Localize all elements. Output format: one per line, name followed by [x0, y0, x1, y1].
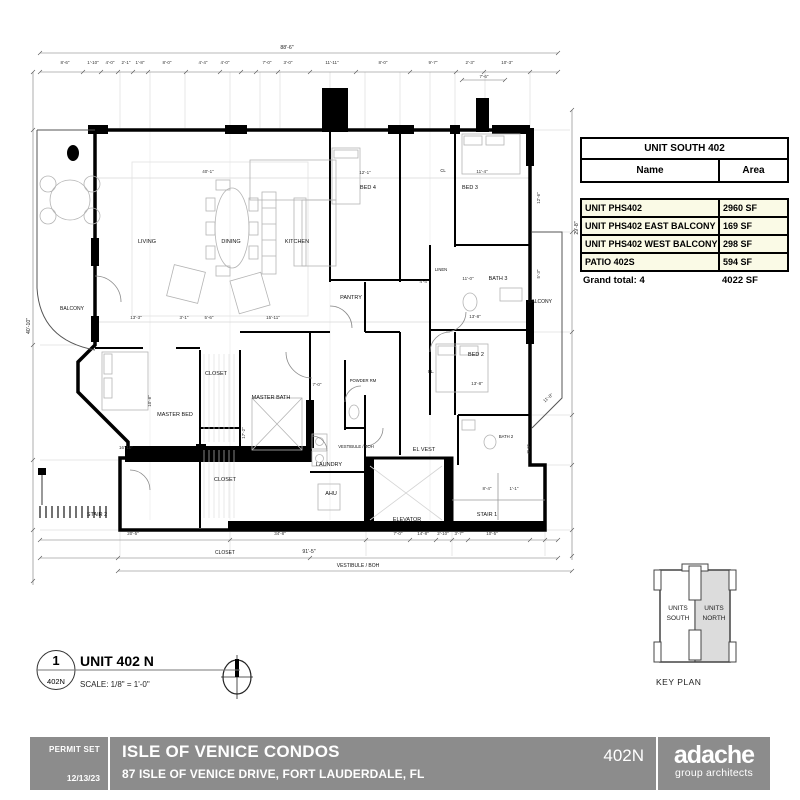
- area-table-title: UNIT SOUTH 402: [580, 137, 789, 160]
- dim-interior: 13'-8": [471, 381, 483, 386]
- floor-plan-canvas: LIVING DINING KITCHEN BED 4 BED 3 BED 2 …: [0, 0, 800, 800]
- dim-bottom: 14'-8": [417, 531, 429, 536]
- title-block-left: PERMIT SET 12/13/23: [30, 737, 110, 790]
- table-row: UNIT PHS402 2960 SF: [582, 200, 787, 218]
- keyplan-units-north-line2: NORTH: [703, 615, 726, 622]
- room-label-cl2: CL: [440, 168, 446, 173]
- room-label-master-bath: MASTER BATH: [252, 395, 291, 401]
- dim-interior: 4'-4": [420, 279, 429, 284]
- drawing-title: 1 402N UNIT 402 N SCALE: 1/8" = 1'-0": [37, 651, 240, 690]
- keyplan-label: KEY PLAN: [656, 677, 701, 687]
- area-table-col-name: Name: [582, 160, 720, 181]
- dim-interior: 8'-6": [526, 444, 531, 453]
- room-label-powder: POWDER RM: [350, 378, 377, 383]
- table-row: PATIO 402S 594 SF: [582, 254, 787, 272]
- dim-seg: 4'-0": [106, 60, 115, 65]
- row-area: 594 SF: [720, 254, 787, 270]
- room-label-balcony-west: BALCONY: [60, 306, 85, 312]
- firm-name: adache: [658, 744, 770, 767]
- total-label: Grand total: 4: [580, 275, 718, 293]
- room-label-master-bed: MASTER BED: [157, 412, 193, 418]
- keyplan-units-north-line1: UNITS: [704, 605, 724, 612]
- drawing-title-scale: SCALE: 1/8" = 1'-0": [80, 680, 150, 689]
- hatching: [40, 354, 234, 518]
- room-label-elevator: ELEVATOR: [393, 517, 421, 523]
- drawing-title-sheet-ref: 402N: [47, 677, 65, 686]
- room-label-linen: LINEN: [435, 267, 447, 272]
- dim-bottom: 20'-5": [127, 531, 139, 536]
- dim-seg: 3'-0": [284, 60, 293, 65]
- dim-interior: 12'-6": [536, 192, 541, 204]
- dim-interior: 13'-8": [469, 314, 481, 319]
- dim-interior: 16'-10": [119, 445, 133, 450]
- issue-date: 12/13/23: [30, 773, 100, 783]
- room-label-laundry: LAUNDRY: [316, 462, 343, 468]
- area-table-header: Name Area: [580, 160, 789, 183]
- dim-overall-top: 88'-6": [280, 45, 293, 51]
- room-label-pantry: PANTRY: [340, 295, 362, 301]
- area-table-body: UNIT PHS402 2960 SF UNIT PHS402 EAST BAL…: [580, 198, 789, 272]
- room-label-closet-c: CLOSET: [215, 550, 235, 556]
- wall-piers: [38, 88, 546, 531]
- dim-interior: 5'-6": [205, 315, 214, 320]
- dim-seg: 7'-0": [263, 60, 272, 65]
- dim-interior: 12'-1": [359, 170, 371, 175]
- dim-interior: 7'-0": [313, 382, 322, 387]
- dim-seg: 1'-10": [87, 60, 99, 65]
- drawing-title-number: 1: [52, 653, 59, 668]
- dim-seg: 4'-0": [221, 60, 230, 65]
- project-name: ISLE OF VENICE CONDOS: [122, 742, 656, 762]
- room-label-ahu: AHU: [325, 491, 337, 497]
- keyplan-units-south-line1: UNITS: [668, 605, 688, 612]
- room-label-kitchen: KITCHEN: [285, 239, 309, 245]
- row-area: 298 SF: [720, 236, 787, 252]
- drawing-sheet: LIVING DINING KITCHEN BED 4 BED 3 BED 2 …: [0, 0, 800, 800]
- dim-overall-left: 40'-10": [26, 318, 32, 334]
- room-label-vestibule: VESTIBULE / BOH: [338, 444, 374, 449]
- table-row: UNIT PHS402 WEST BALCONY 298 SF: [582, 236, 787, 254]
- sheet-number: 402N: [603, 746, 644, 766]
- room-label-dining: DINING: [221, 239, 240, 245]
- keyplan-units-south-line2: SOUTH: [667, 615, 690, 622]
- dim-interior: 11'-0": [462, 276, 474, 281]
- permit-set-label: PERMIT SET: [30, 745, 100, 754]
- room-label-stair1: STAIR 1: [477, 512, 497, 518]
- dim-bottom: 7'-0": [394, 531, 403, 536]
- dim-interior: 40'-1": [202, 169, 214, 174]
- dim-overall-bottom: 91'-5": [302, 549, 315, 555]
- row-name: UNIT PHS402: [582, 200, 720, 216]
- dim-interior: 3'-1": [180, 315, 189, 320]
- dim-interior: 8'-4": [483, 486, 492, 491]
- room-label-bath2: BATH 2: [499, 434, 514, 439]
- dim-seg: 10'-3": [501, 60, 513, 65]
- room-label-bed4: BED 4: [360, 185, 376, 191]
- balcony-outlines: [37, 130, 562, 428]
- dim-seg: 2'-3": [466, 60, 475, 65]
- dim-seg: 8'-6": [61, 60, 70, 65]
- area-table: UNIT SOUTH 402 Name Area UNIT PHS402 296…: [580, 137, 789, 293]
- dim-interior: 15'-11": [266, 315, 280, 320]
- title-block-main: ISLE OF VENICE CONDOS 87 ISLE OF VENICE …: [110, 737, 658, 790]
- furniture: [40, 134, 545, 520]
- dim-seg: 4'-4": [199, 60, 208, 65]
- row-name: UNIT PHS402 EAST BALCONY: [582, 218, 720, 234]
- room-label-closet-a: CLOSET: [205, 371, 228, 377]
- row-name: UNIT PHS402 WEST BALCONY: [582, 236, 720, 252]
- room-label-balcony-east: BALCONY: [528, 299, 553, 305]
- table-row: UNIT PHS402 EAST BALCONY 169 SF: [582, 218, 787, 236]
- room-label-stair2: STAIR 2: [87, 512, 107, 518]
- room-label-vestibule2: VESTIBULE / BOH: [337, 563, 380, 569]
- title-block-bar: PERMIT SET 12/13/23 ISLE OF VENICE CONDO…: [30, 737, 770, 790]
- dim-interior: 10'-8": [147, 395, 152, 407]
- area-table-col-area: Area: [720, 160, 787, 181]
- room-label-closet-b: CLOSET: [214, 477, 237, 483]
- dim-bottom: 3'-7": [455, 531, 464, 536]
- dim-seg: 2'-1": [122, 60, 131, 65]
- north-arrow-icon: [221, 655, 253, 699]
- dim-bottom: 10'-5": [486, 531, 498, 536]
- room-label-bed3: BED 3: [462, 185, 478, 191]
- row-area: 169 SF: [720, 218, 787, 234]
- dim-interior: 13'-3": [130, 315, 142, 320]
- dim-interior: 17'-2": [241, 427, 246, 439]
- dim-seg: 9'-7": [429, 60, 438, 65]
- room-label-bath3: BATH 3: [489, 276, 508, 282]
- dim-bottom: 2'-10": [437, 531, 449, 536]
- project-address: 87 ISLE OF VENICE DRIVE, FORT LAUDERDALE…: [122, 767, 656, 781]
- dim-interior: 11'-4": [476, 169, 488, 174]
- dim-interior: 11'-8": [542, 392, 554, 403]
- room-label-living: LIVING: [138, 239, 156, 245]
- dimension-labels: 88'-6" 8'-6" 1'-10" 4'-0" 2'-1" 1'-8" 8'…: [26, 45, 580, 555]
- dim-interior: 5'-3": [536, 269, 541, 278]
- room-label-el-vest: EL VEST: [413, 447, 436, 453]
- dim-bottom: 34'-8": [274, 531, 286, 536]
- dim-seg: 8'-0": [163, 60, 172, 65]
- firm-logo: adache group architects: [658, 737, 770, 790]
- dim-interior: 1'-1": [510, 486, 519, 491]
- dim-seg: 8'-0": [379, 60, 388, 65]
- area-table-total: Grand total: 4 4022 SF: [580, 272, 789, 293]
- dim-seg: 1'-8": [136, 60, 145, 65]
- total-area: 4022 SF: [718, 275, 789, 293]
- room-label-cl: CL.: [428, 369, 435, 374]
- row-area: 2960 SF: [720, 200, 787, 216]
- key-plan: UNITS SOUTH UNITS NORTH KEY PLAN: [654, 564, 736, 687]
- row-name: PATIO 402S: [582, 254, 720, 270]
- dim-seg: 11'-11": [325, 60, 339, 65]
- dim-sub: 7'-6": [480, 74, 489, 79]
- room-label-bed2: BED 2: [468, 352, 484, 358]
- drawing-title-text: UNIT 402 N: [80, 653, 154, 669]
